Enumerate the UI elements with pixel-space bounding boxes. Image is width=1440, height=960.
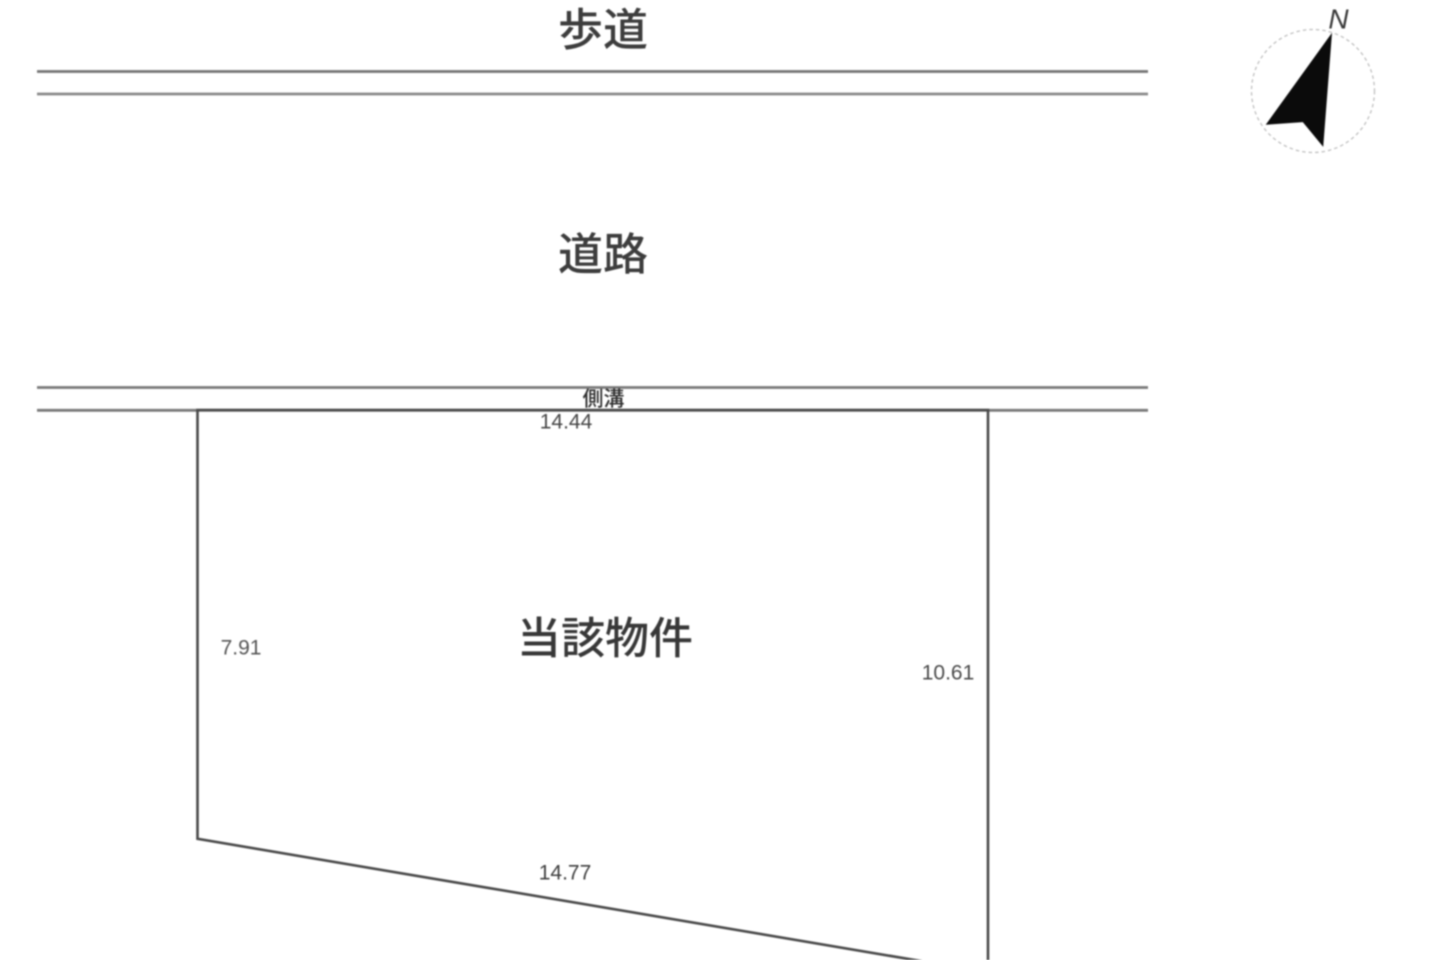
svg-text:7.91: 7.91 — [221, 637, 262, 660]
svg-text:14.77: 14.77 — [539, 862, 592, 885]
svg-text:N: N — [1328, 4, 1349, 35]
svg-text:14.44: 14.44 — [540, 410, 593, 433]
svg-text:10.61: 10.61 — [922, 662, 975, 685]
